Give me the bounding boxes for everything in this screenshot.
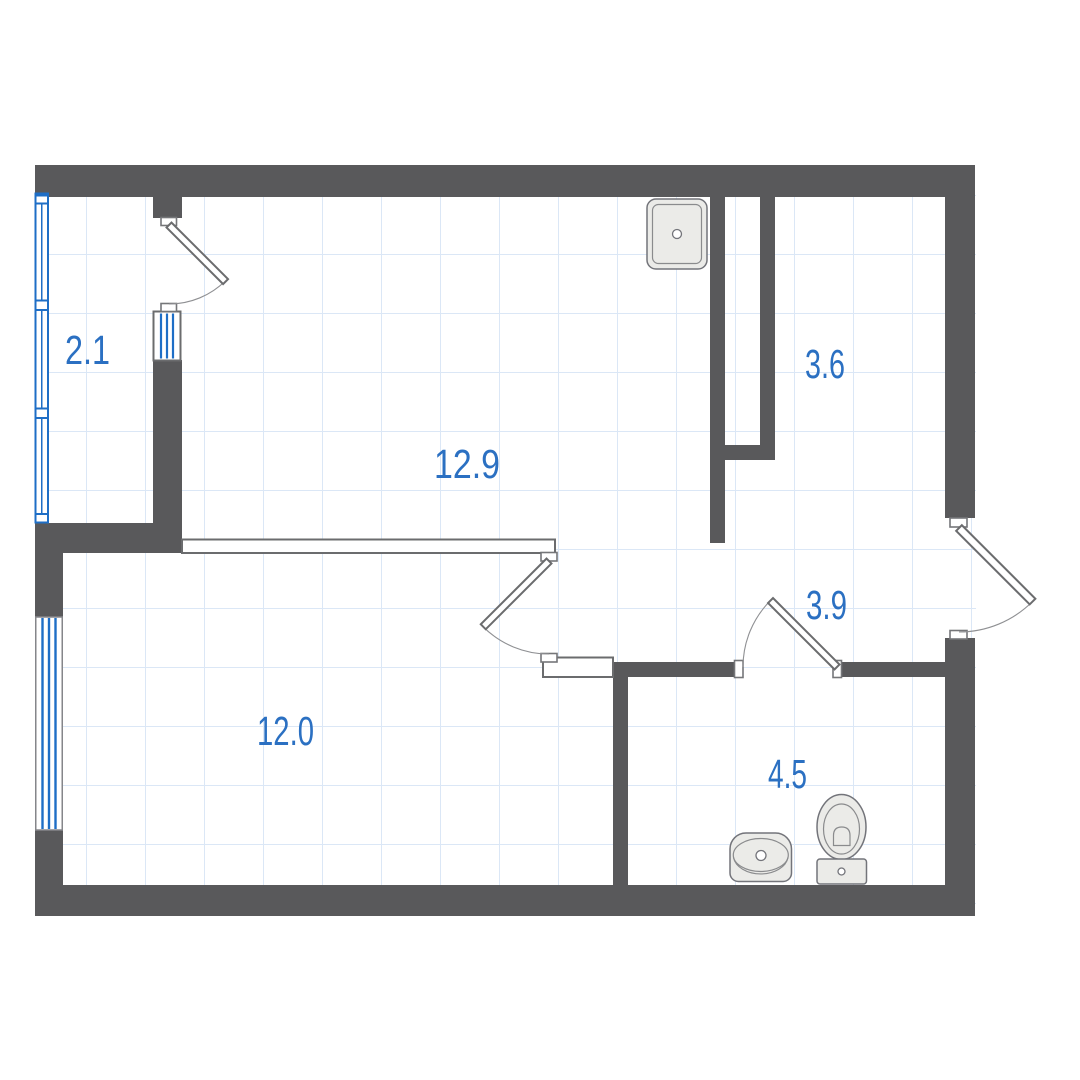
wall-bathroom-left — [613, 677, 628, 885]
wall-balcony-bottom — [35, 523, 182, 553]
door-jamb — [161, 304, 177, 312]
window-divider — [36, 301, 49, 311]
door-jamb — [541, 654, 557, 663]
door-jamb — [735, 661, 744, 678]
partition-bedroom-living — [182, 540, 555, 554]
window-divider — [36, 409, 49, 419]
wall-left-lower — [35, 830, 63, 885]
room-label-living-kitchen: 12.9 — [434, 441, 500, 487]
toilet-icon — [817, 795, 867, 885]
divider-window — [154, 312, 181, 361]
room-label-bathroom: 4.5 — [768, 751, 807, 797]
wall-shaft-bottom — [710, 445, 775, 460]
window-cap — [36, 514, 49, 523]
wall-balcony-divider — [153, 360, 182, 523]
sink-drain — [673, 230, 682, 239]
room-label-bedroom: 12.0 — [257, 708, 314, 754]
wall-left-upper — [35, 553, 63, 617]
wall-top — [35, 165, 975, 197]
wall-right-upper — [945, 197, 975, 518]
floor-plan: 2.1 12.9 3.6 3.9 12.0 4.5 — [0, 0, 1080, 1080]
balcony-window — [36, 194, 49, 523]
wall-shaft-left — [710, 197, 725, 543]
door-jamb — [950, 518, 967, 527]
room-label-corridor: 3.9 — [806, 582, 847, 628]
room-label-hall: 3.6 — [805, 341, 845, 387]
wall-shaft-right — [760, 197, 775, 460]
washbasin-icon — [730, 833, 792, 882]
wall-bathroom-top-right — [841, 662, 945, 677]
wall-right-lower — [945, 638, 975, 916]
basin-drain — [756, 851, 766, 861]
room-label-balcony: 2.1 — [65, 327, 110, 373]
wall-bathroom-top-left — [613, 662, 735, 677]
wall-balcony-divider-stub — [153, 197, 182, 218]
kitchen-sink-icon — [647, 199, 707, 269]
floor-plan-canvas: 2.1 12.9 3.6 3.9 12.0 4.5 — [0, 0, 1080, 1080]
bedroom-window — [36, 617, 63, 830]
wall-bottom — [35, 885, 975, 916]
window-cap — [36, 196, 49, 204]
toilet-button — [838, 868, 845, 875]
